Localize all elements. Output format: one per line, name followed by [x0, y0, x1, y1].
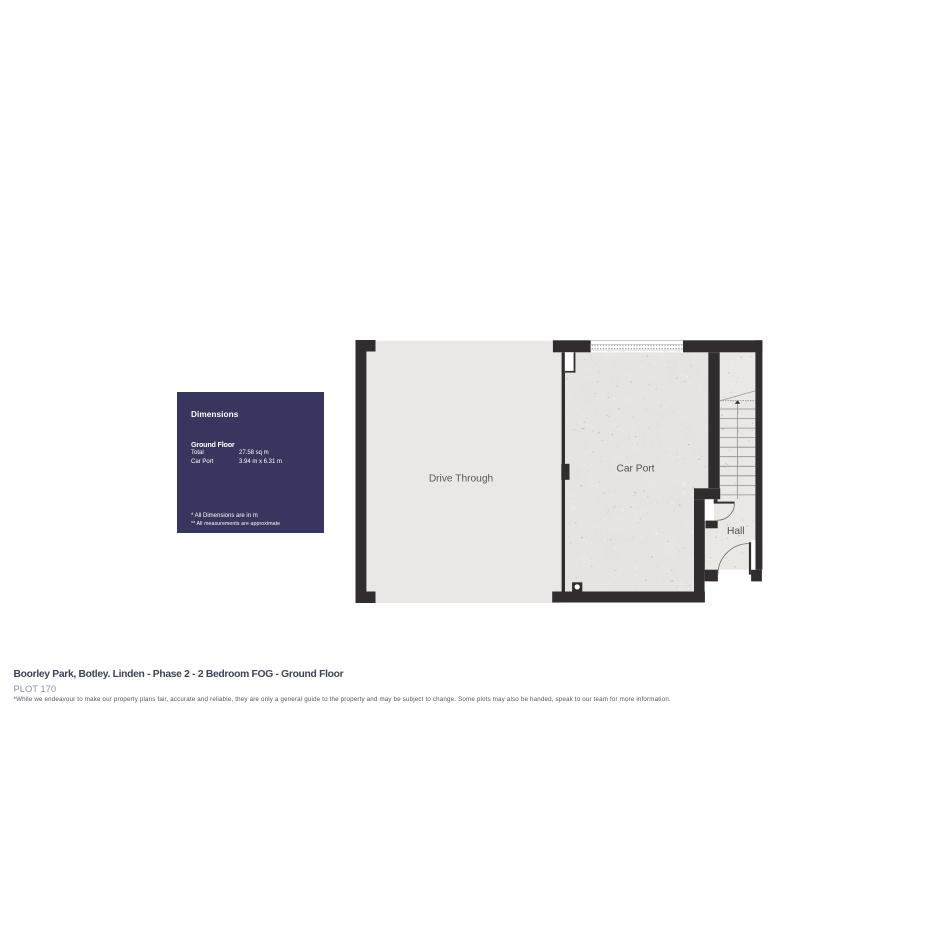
svg-text:Hall: Hall — [727, 526, 745, 537]
svg-text:Car Port: Car Port — [617, 464, 655, 475]
svg-text:Drive Through: Drive Through — [429, 473, 493, 484]
